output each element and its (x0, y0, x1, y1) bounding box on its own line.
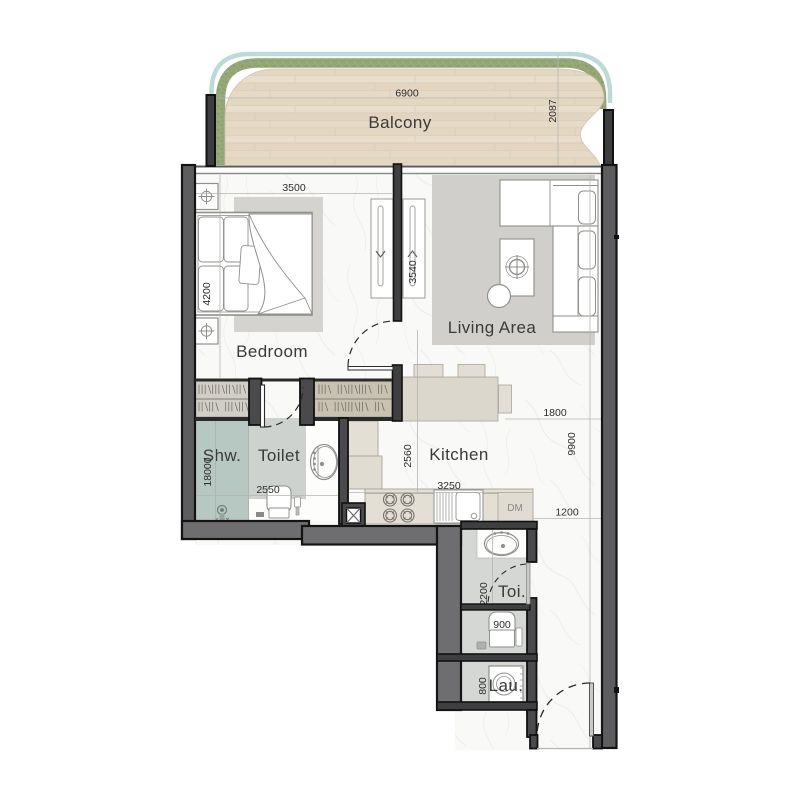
svg-text:6900: 6900 (395, 88, 419, 100)
svg-text:1800: 1800 (543, 407, 567, 419)
svg-text:800: 800 (477, 677, 489, 695)
svg-text:2550: 2550 (256, 484, 280, 496)
svg-text:Toilet: Toilet (258, 446, 300, 465)
svg-text:1200: 1200 (555, 507, 579, 519)
svg-text:3500: 3500 (282, 182, 306, 194)
svg-text:4200: 4200 (201, 282, 213, 306)
svg-text:Lau.: Lau. (489, 676, 524, 695)
svg-text:18000: 18000 (202, 457, 214, 486)
svg-text:Kitchen: Kitchen (429, 445, 489, 464)
svg-text:Living Area: Living Area (448, 318, 537, 337)
svg-text:9900: 9900 (566, 432, 578, 456)
svg-text:3250: 3250 (437, 480, 461, 492)
svg-text:900: 900 (493, 619, 511, 631)
svg-text:2087: 2087 (547, 99, 559, 123)
svg-text:Toi.: Toi. (498, 582, 526, 601)
svg-text:DM: DM (507, 503, 523, 514)
svg-text:3540: 3540 (407, 260, 419, 284)
svg-text:2560: 2560 (402, 444, 414, 468)
svg-text:Bedroom: Bedroom (236, 342, 308, 361)
svg-text:2200: 2200 (478, 582, 490, 606)
svg-text:Balcony: Balcony (368, 113, 431, 132)
